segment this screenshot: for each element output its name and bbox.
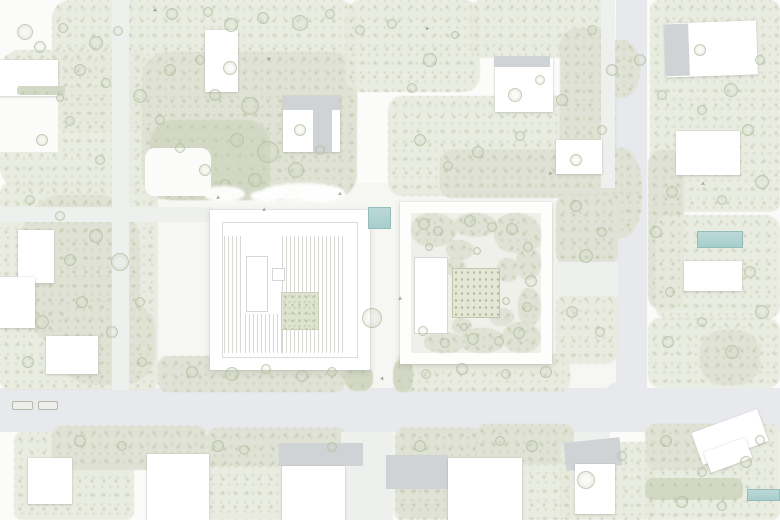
building [676, 131, 740, 175]
tree [407, 83, 417, 93]
building [147, 454, 209, 520]
tree [501, 369, 511, 379]
tree [755, 305, 769, 319]
tree [209, 89, 221, 101]
tree [697, 467, 707, 477]
tree [224, 18, 238, 32]
building-roof [386, 455, 448, 489]
building [46, 336, 98, 374]
tree [595, 327, 605, 337]
hedge [645, 478, 743, 500]
tree [535, 75, 545, 85]
tree [725, 345, 739, 359]
tree [440, 338, 450, 348]
tree [74, 64, 86, 76]
tree [724, 83, 738, 97]
tree [327, 367, 337, 377]
tree [414, 134, 426, 146]
tree [421, 369, 431, 379]
tree [697, 317, 707, 327]
tree [261, 364, 271, 374]
tree [195, 55, 205, 65]
tree [697, 105, 707, 115]
tree [325, 9, 335, 19]
tree [433, 226, 443, 236]
building [18, 230, 54, 283]
tree [526, 440, 538, 452]
tree [508, 88, 522, 102]
tree [522, 302, 532, 312]
tree [133, 89, 147, 103]
tree [387, 19, 397, 29]
tree [464, 215, 476, 227]
footpath [0, 207, 213, 222]
tree [34, 41, 46, 53]
garden-parterre [452, 268, 500, 318]
tree [64, 254, 76, 266]
building [282, 466, 345, 520]
tree [117, 441, 127, 451]
tree [525, 275, 537, 287]
building-roof [664, 24, 690, 77]
building [0, 277, 35, 328]
tree [355, 25, 365, 35]
tree [55, 211, 65, 221]
main-roof-stripes [245, 314, 282, 353]
tree [566, 306, 578, 318]
tree [239, 445, 249, 455]
tree [56, 94, 64, 102]
tree [456, 363, 468, 375]
tree [241, 97, 259, 115]
main-roof-hall [246, 256, 268, 312]
tree [76, 296, 88, 308]
tree [495, 436, 505, 446]
tree [155, 115, 165, 125]
tree [634, 54, 646, 66]
tree [556, 94, 568, 106]
footpath [601, 0, 615, 188]
tree [755, 55, 765, 65]
tree [650, 226, 662, 238]
junction [598, 380, 656, 432]
tree [362, 308, 382, 328]
tree [570, 200, 582, 212]
tree [570, 154, 582, 166]
tree [494, 336, 504, 346]
tree [472, 146, 484, 158]
tree [315, 145, 325, 155]
building-roof [494, 56, 550, 67]
tree [135, 297, 145, 307]
tree [506, 223, 518, 235]
tree [113, 26, 123, 36]
tree [467, 333, 479, 345]
tree [487, 222, 497, 232]
tree [95, 155, 105, 165]
tree [166, 8, 178, 20]
tree [665, 287, 675, 297]
tree [257, 141, 279, 163]
tree [22, 356, 34, 368]
tree [17, 24, 33, 40]
garden-house [414, 257, 448, 334]
tree [597, 227, 607, 237]
tree [460, 323, 468, 331]
tree [257, 12, 269, 24]
tree [25, 195, 35, 205]
tree [292, 15, 308, 31]
footpath [0, 96, 58, 152]
tree [106, 326, 118, 338]
tree [587, 25, 597, 35]
tree [657, 90, 667, 100]
tree [694, 44, 706, 56]
tree [89, 36, 103, 50]
tree [175, 143, 185, 153]
tree [473, 247, 481, 255]
pool [747, 489, 780, 501]
tree [223, 61, 237, 75]
tree [744, 266, 756, 278]
tree [186, 366, 198, 378]
building [684, 261, 742, 291]
tree [425, 243, 433, 251]
vegetation-patch [556, 292, 618, 364]
tree [740, 456, 752, 468]
tree [36, 134, 48, 146]
tree [443, 161, 453, 171]
tree [203, 7, 213, 17]
tree [137, 357, 147, 367]
tree [717, 195, 727, 205]
tree [65, 116, 75, 126]
tree [451, 31, 459, 39]
main-roof-stripes [224, 236, 244, 353]
tree [74, 435, 86, 447]
tree [523, 242, 533, 252]
building-roof [279, 443, 363, 466]
tree [248, 173, 262, 187]
main-roof-courtyard [281, 292, 319, 330]
tree [199, 164, 211, 176]
tree [502, 297, 510, 305]
tree [617, 451, 627, 461]
building [28, 458, 72, 504]
tree [414, 440, 426, 452]
tree [742, 124, 754, 136]
tree [225, 367, 239, 381]
tree [423, 53, 437, 67]
tree [662, 336, 674, 348]
tree [418, 218, 430, 230]
tree [327, 442, 337, 452]
awning [203, 186, 245, 202]
pool [368, 207, 391, 229]
tree [540, 366, 552, 378]
tree [666, 186, 678, 198]
tree [230, 133, 244, 147]
tree [717, 501, 727, 511]
footpath [556, 262, 618, 296]
tree [164, 64, 176, 76]
tree [660, 435, 672, 447]
pool [697, 231, 743, 248]
tree [288, 162, 304, 178]
vegetation-patch [393, 360, 413, 392]
tree [515, 131, 525, 141]
tree [58, 23, 68, 33]
building [448, 458, 522, 520]
tree [755, 435, 765, 445]
tree [101, 78, 111, 88]
tree [294, 124, 306, 136]
tree [513, 327, 525, 339]
tree [755, 175, 769, 189]
site-plan: ➤➤➤➤➤➤➤➤➤➤ [0, 0, 780, 520]
tree [418, 326, 428, 336]
main-roof-skylight [272, 268, 285, 281]
tree [111, 253, 129, 271]
tree [212, 440, 224, 452]
building-roof [313, 96, 332, 152]
tree [35, 315, 49, 329]
tree [606, 64, 618, 76]
parked-car [12, 401, 33, 410]
tree [296, 370, 308, 382]
tree [597, 125, 607, 135]
vegetation-patch [345, 0, 480, 92]
tree [577, 471, 595, 489]
tree [89, 229, 103, 243]
parked-car [38, 401, 58, 410]
garden-shrub [497, 258, 519, 282]
garden-shrub [446, 240, 474, 260]
tree [579, 249, 593, 263]
tree [676, 496, 688, 508]
